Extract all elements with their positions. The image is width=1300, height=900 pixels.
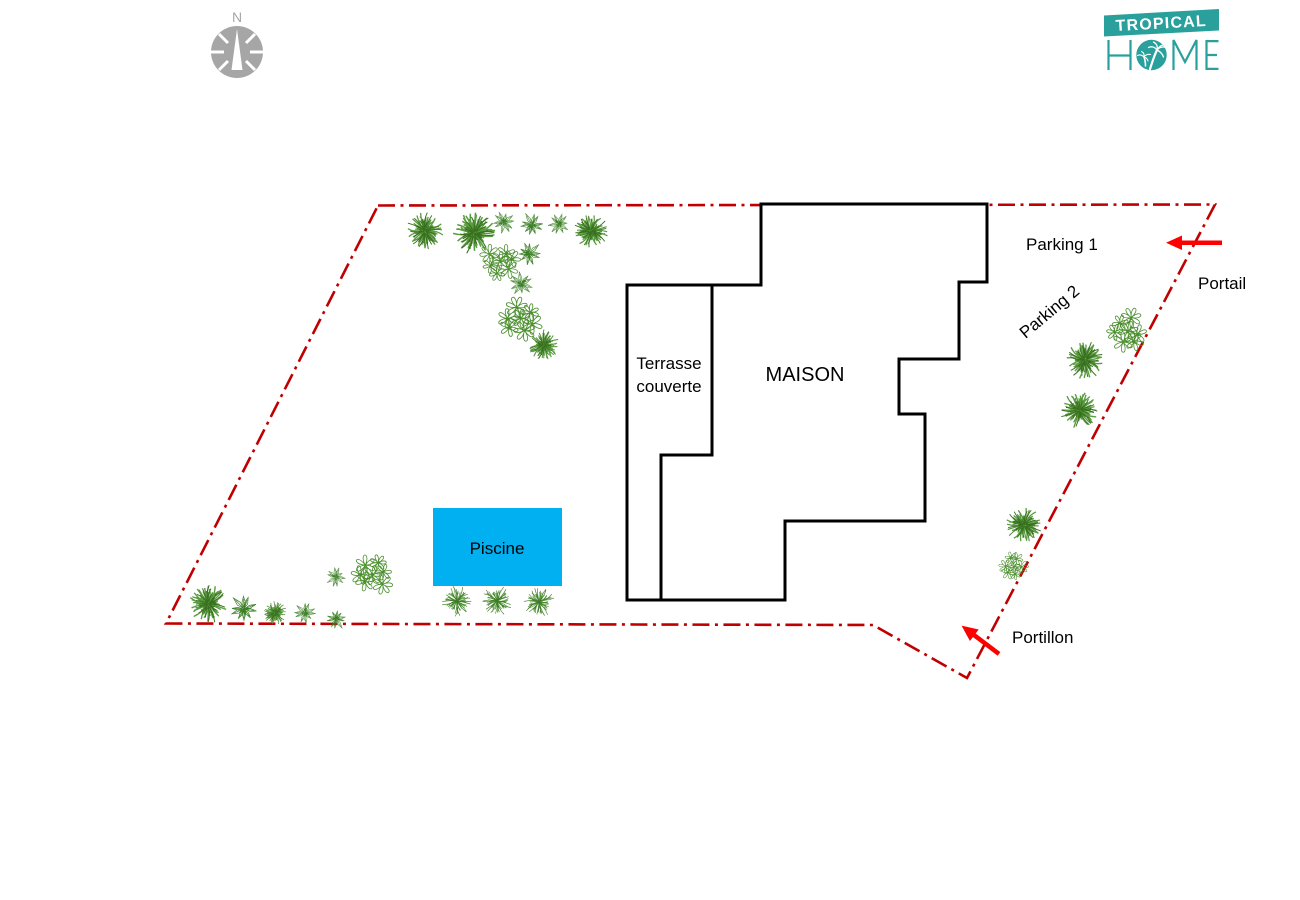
svg-text:Parking 1: Parking 1 [1026, 235, 1098, 254]
svg-text:couverte: couverte [636, 377, 701, 396]
svg-text:Portillon: Portillon [1012, 628, 1073, 647]
svg-text:MAISON: MAISON [766, 364, 845, 386]
svg-text:Portail: Portail [1198, 274, 1246, 293]
svg-text:N: N [232, 9, 242, 25]
svg-text:Terrasse: Terrasse [636, 354, 701, 373]
svg-text:Piscine: Piscine [470, 539, 525, 558]
